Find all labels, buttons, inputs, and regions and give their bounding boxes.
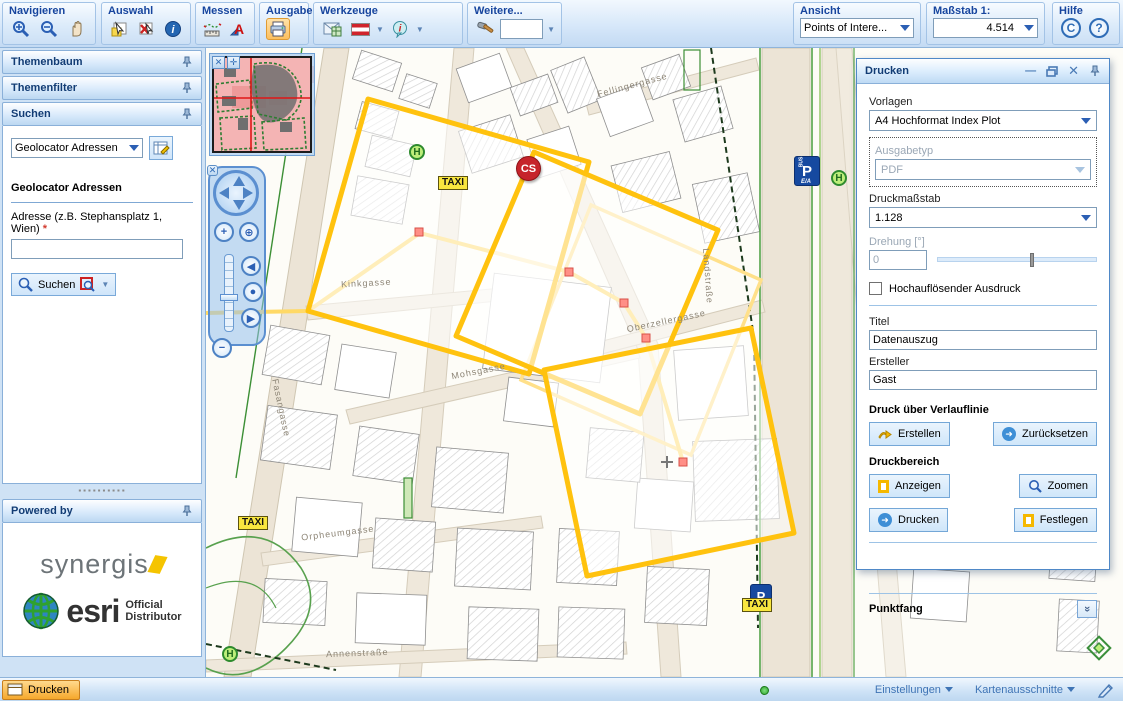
parking-bus-label: BUS: [798, 157, 804, 168]
prev-extent-button[interactable]: ◀: [241, 256, 261, 276]
clear-selection-button[interactable]: [135, 18, 158, 40]
define-area-icon: [1023, 514, 1034, 527]
navigator-close-button[interactable]: ✕: [207, 165, 218, 176]
close-icon[interactable]: ✕: [1068, 63, 1079, 79]
drucken-button[interactable]: ➜ Drucken: [869, 508, 948, 532]
group-label-auswahl: Auswahl: [106, 4, 186, 17]
pin-icon[interactable]: [181, 82, 193, 94]
group-label-navigieren: Navigieren: [7, 4, 91, 17]
zoomen-button[interactable]: Zoomen: [1019, 474, 1097, 498]
ausgabetyp-group: Ausgabetyp PDF: [869, 137, 1097, 187]
search-type-value: Geolocator Adressen: [15, 142, 118, 154]
vorlagen-label: Vorlagen: [869, 96, 1097, 108]
group-label-werkzeuge: Werkzeuge: [318, 4, 458, 17]
ausgabetyp-select: PDF: [875, 159, 1091, 180]
search-button[interactable]: Suchen ▼: [11, 273, 116, 296]
toolbar-group-navigieren: Navigieren: [2, 2, 96, 45]
center-button[interactable]: ●: [243, 282, 263, 302]
maptip-dropdown-arrow[interactable]: ▼: [416, 25, 424, 34]
printer-icon: [269, 21, 287, 37]
druckmassstab-select[interactable]: 1.128: [869, 207, 1097, 228]
maptip-balloon-icon: i: [391, 20, 409, 38]
panel-title: Powered by: [11, 505, 73, 517]
full-extent-button[interactable]: ⊕: [239, 222, 259, 242]
zoom-slider-handle[interactable]: [220, 294, 238, 301]
overview-close-button[interactable]: ✕: [212, 56, 225, 69]
reset-arrow-icon: ➜: [1002, 427, 1016, 441]
feature-info-button[interactable]: i: [161, 18, 184, 40]
mail-map-icon: [323, 21, 342, 37]
festlegen-button[interactable]: Festlegen: [1014, 508, 1097, 532]
text-label-icon: A: [229, 20, 247, 38]
group-label-weitere: Weitere...: [472, 4, 557, 17]
ausgabetyp-label: Ausgabetyp: [875, 145, 1091, 157]
svg-text:i: i: [399, 24, 402, 35]
panel-header-powered-by[interactable]: Powered by: [2, 499, 202, 523]
print-arrow-icon: ➜: [878, 513, 892, 527]
pin-icon[interactable]: [1089, 65, 1101, 77]
druckmassstab-caret-icon: [1081, 215, 1091, 221]
next-extent-button[interactable]: ▶: [241, 308, 261, 328]
punktfang-expand-button[interactable]: »: [1077, 600, 1097, 618]
einstellungen-caret-icon: [945, 687, 953, 692]
send-map-button[interactable]: [320, 18, 344, 40]
transit-stop-marker: H: [831, 170, 847, 186]
maptip-button[interactable]: i: [388, 18, 412, 40]
titel-input[interactable]: [869, 330, 1097, 350]
address-label: Adresse (z.B. Stephansplatz 1, Wien) *: [11, 211, 193, 235]
weitere-select[interactable]: [500, 19, 543, 39]
print-dialog: Drucken — ✕ Vorlagen A4 Hochformat Index…: [856, 58, 1110, 570]
address-input[interactable]: [11, 239, 183, 259]
synergis-diamond-icon: [147, 555, 167, 574]
pin-icon[interactable]: [181, 56, 193, 68]
pin-icon[interactable]: [181, 108, 193, 120]
zoom-to-result-icon[interactable]: [80, 277, 96, 292]
main-toolbar: Navigieren Auswahl i: [0, 0, 1123, 48]
minimize-icon[interactable]: —: [1025, 65, 1036, 77]
zoom-out-button[interactable]: [37, 18, 61, 40]
austria-flag-icon: [351, 23, 370, 36]
form-edit-icon: [152, 139, 170, 157]
massstab-value: 4.514: [986, 22, 1014, 34]
zoom-out-nav-button[interactable]: −: [212, 338, 232, 358]
bottom-taskbar: Drucken Einstellungen Kartenausschnitte: [0, 677, 1123, 701]
ersteller-input[interactable]: [869, 370, 1097, 390]
druckmassstab-value: 1.128: [875, 212, 903, 224]
hires-checkbox-label: Hochauflösender Ausdruck: [889, 283, 1020, 295]
tools-button[interactable]: [474, 18, 496, 40]
panel-header-suchen[interactable]: Suchen: [2, 102, 202, 126]
druckbereich-heading: Druckbereich: [869, 456, 1097, 468]
print-area-frames[interactable]: [308, 99, 794, 576]
overview-move-icon[interactable]: ✛: [227, 56, 240, 69]
ersteller-label: Ersteller: [869, 356, 1097, 368]
overview-map[interactable]: ✕ ✛: [209, 53, 315, 156]
toolbar-group-ausgabe: Ausgabe: [259, 2, 309, 45]
punktfang-heading: Punktfang: [869, 603, 923, 615]
carsharing-marker[interactable]: CS: [516, 156, 541, 181]
transit-stop-marker: H: [409, 144, 425, 160]
erstellen-button[interactable]: Erstellen: [869, 422, 950, 446]
measure-button[interactable]: [202, 18, 223, 40]
map-navigator: ✕ + ⊕ ◀ ● ▶ −: [208, 166, 266, 374]
zuruecksetzen-button[interactable]: ➜ Zurücksetzen: [993, 422, 1097, 446]
search-type-select[interactable]: Geolocator Adressen: [11, 138, 143, 158]
ausgabetyp-caret-icon: [1075, 167, 1085, 173]
pan-button[interactable]: [65, 18, 89, 40]
vorlagen-value: A4 Hochformat Index Plot: [875, 115, 1000, 127]
group-label-hilfe: Hilfe: [1057, 4, 1115, 17]
drehung-label: Drehung [°]: [869, 236, 1097, 248]
massstab-combo[interactable]: 4.514: [933, 18, 1038, 38]
pan-left-icon[interactable]: [219, 187, 229, 199]
panel-title: Suchen: [11, 108, 51, 120]
einstellungen-menu[interactable]: Einstellungen: [875, 684, 953, 696]
parking-ea-label: E/A: [801, 179, 811, 185]
zoom-slider[interactable]: [224, 254, 234, 332]
group-label-massstab: Maßstab 1:: [931, 4, 1040, 17]
taskbar-drucken-button[interactable]: Drucken: [2, 680, 80, 700]
ansicht-select-value: Points of Intere...: [804, 22, 887, 34]
search-panel-body: Geolocator Adressen Geolocator Adressen …: [2, 126, 202, 484]
print-dialog-title: Drucken: [865, 65, 909, 77]
hires-checkbox[interactable]: [869, 282, 882, 295]
esri-globe-icon: [22, 592, 60, 630]
search-type-caret-icon: [129, 145, 139, 151]
vorlagen-select[interactable]: A4 Hochformat Index Plot: [869, 110, 1097, 131]
powered-by-body: synergis esri Official Distributor: [2, 523, 202, 657]
search-form-button[interactable]: [149, 136, 173, 160]
druckmassstab-label: Druckmaßstab: [869, 193, 1097, 205]
search-button-label: Suchen: [38, 279, 75, 291]
pan-down-icon[interactable]: [233, 200, 245, 210]
pan-hand-icon: [68, 20, 86, 38]
toolbar-group-werkzeuge: Werkzeuge ▼ i ▼: [313, 2, 463, 45]
search-section-title: Geolocator Adressen: [11, 182, 193, 194]
vorlagen-caret-icon: [1081, 118, 1091, 124]
create-line-icon: [878, 428, 892, 440]
pan-up-icon[interactable]: [233, 176, 245, 186]
toolbar-group-massstab: Maßstab 1: 4.514: [926, 2, 1045, 45]
titel-label: Titel: [869, 316, 1097, 328]
toolbar-group-hilfe: Hilfe C ?: [1052, 2, 1120, 45]
svg-text:A: A: [233, 21, 243, 37]
panel-header-themenfilter[interactable]: Themenfilter: [2, 76, 202, 100]
select-arrow-icon: [110, 20, 128, 38]
clear-selection-icon: [137, 20, 155, 38]
info-icon: i: [164, 20, 182, 38]
synergis-logo: synergis: [40, 549, 164, 580]
ausgabetyp-value: PDF: [881, 164, 903, 176]
group-label-ansicht: Ansicht: [798, 4, 916, 17]
flag-tool-button[interactable]: [348, 18, 372, 40]
compass-pad[interactable]: [213, 170, 259, 216]
taxi-sign: TAXI: [238, 516, 268, 530]
parking-sign: BUS P E/A: [794, 156, 820, 186]
weitere-dropdown-arrow[interactable]: ▼: [547, 25, 555, 34]
group-label-ausgabe: Ausgabe: [264, 4, 304, 17]
print-tool-button[interactable]: [266, 18, 290, 40]
status-indicator: [760, 686, 769, 695]
taxi-sign: TAXI: [742, 598, 772, 612]
group-label-messen: Messen: [200, 4, 250, 17]
pin-icon[interactable]: [181, 505, 193, 517]
panel-title: Themenbaum: [11, 56, 83, 68]
transit-stop-marker: H: [222, 646, 238, 662]
ansicht-caret-icon: [900, 25, 910, 31]
esri-logo: esri Official Distributor: [22, 592, 181, 630]
double-chevron-icon: »: [1081, 606, 1093, 612]
drehung-slider-handle: [1030, 253, 1034, 267]
overview-map-content: [212, 56, 312, 153]
window-icon: [7, 683, 23, 696]
drehung-input: [869, 250, 927, 270]
drehung-slider: [937, 257, 1097, 262]
print-area-icon: [878, 480, 889, 493]
panel-title: Themenfilter: [11, 82, 77, 94]
copyright-button[interactable]: C: [1061, 18, 1081, 38]
verlauflinie-heading: Druck über Verlauflinie: [869, 404, 1097, 416]
select-button[interactable]: [108, 18, 131, 40]
zoom-out-icon: [40, 20, 58, 38]
restore-icon[interactable]: [1046, 66, 1058, 77]
hammer-icon: [476, 21, 494, 37]
kartenausschnitte-menu[interactable]: Kartenausschnitte: [975, 684, 1075, 696]
measure-icon: [203, 20, 222, 38]
panel-resize-handle[interactable]: ▪▪▪▪▪▪▪▪▪▪: [0, 484, 205, 497]
label-tool-button[interactable]: A: [227, 18, 248, 40]
toolbar-group-weitere: Weitere... ▼: [467, 2, 562, 45]
ansicht-select[interactable]: Points of Intere...: [800, 18, 914, 38]
zoom-in-button[interactable]: [9, 18, 33, 40]
toolbar-group-ansicht: Ansicht Points of Intere...: [793, 2, 921, 45]
zoom-in-icon: [12, 20, 30, 38]
help-button[interactable]: ?: [1089, 18, 1109, 38]
kartenausschnitte-caret-icon: [1067, 687, 1075, 692]
flag-dropdown-arrow[interactable]: ▼: [376, 25, 384, 34]
massstab-caret-icon: [1024, 25, 1034, 31]
search-icon: [18, 277, 33, 292]
toolbar-group-auswahl: Auswahl i: [101, 2, 191, 45]
toolbar-group-messen: Messen A: [195, 2, 255, 45]
panel-header-themenbaum[interactable]: Themenbaum: [2, 50, 202, 74]
anzeigen-button[interactable]: Anzeigen: [869, 474, 950, 498]
pan-right-icon[interactable]: [243, 187, 253, 199]
taxi-sign: TAXI: [438, 176, 468, 190]
search-options-arrow[interactable]: ▼: [101, 280, 109, 289]
required-asterisk: *: [43, 223, 47, 235]
print-dialog-header[interactable]: Drucken — ✕: [857, 59, 1109, 84]
zoom-icon: [1028, 479, 1042, 493]
pen-icon[interactable]: [1097, 682, 1115, 698]
zoom-in-nav-button[interactable]: +: [214, 222, 234, 242]
left-sidebar: Themenbaum Themenfilter Suchen Geolocato…: [0, 48, 205, 677]
